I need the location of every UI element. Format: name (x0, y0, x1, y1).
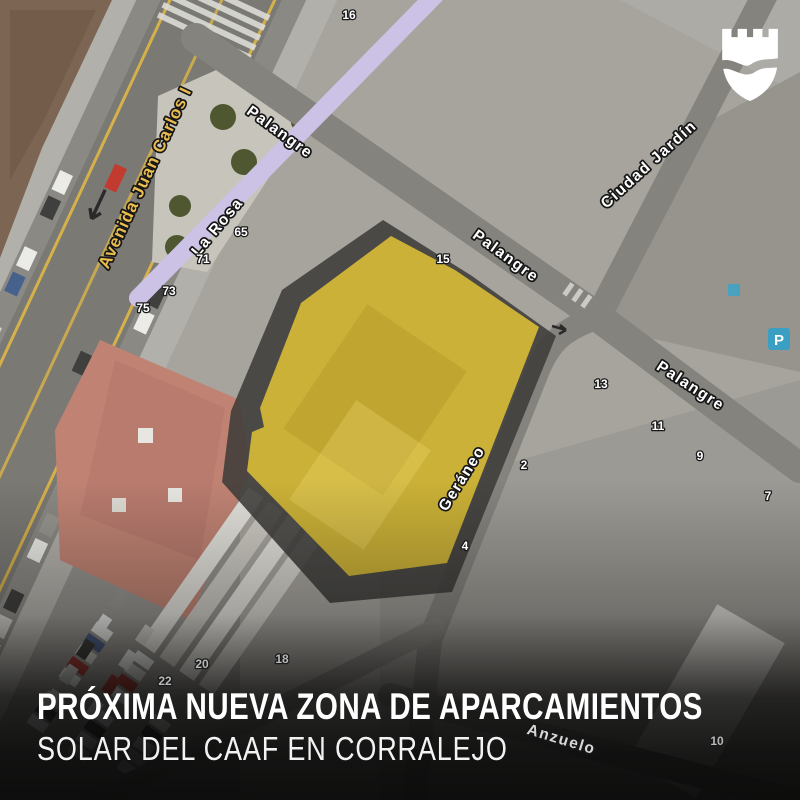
house-number: 9 (697, 449, 704, 463)
house-number: 11 (652, 419, 665, 433)
house-number: 16 (342, 8, 356, 22)
house-number: 2 (521, 458, 528, 472)
house-number: 71 (196, 252, 210, 266)
house-number: 20 (195, 657, 209, 671)
house-number: 75 (136, 301, 150, 315)
house-number: 18 (275, 652, 289, 666)
house-number: 13 (594, 377, 608, 391)
municipality-shield-logo (716, 24, 782, 112)
house-number: 15 (436, 252, 450, 266)
house-number: 7 (765, 489, 772, 503)
caption-subtitle: SOLAR DEL CAAF EN CORRALEJO (37, 731, 800, 767)
house-number: 4 (462, 539, 469, 553)
parking-badge-label: P (774, 332, 784, 349)
caption-title-text: PRÓXIMA NUEVA ZONA DE APARCAMIENTOS (37, 688, 703, 727)
post-image: P Avenida Juan Carlos I Palangre Palangr… (0, 0, 800, 800)
caption: PRÓXIMA NUEVA ZONA DE APARCAMIENTOS SOLA… (37, 688, 800, 767)
satellite-map: P Avenida Juan Carlos I Palangre Palangr… (0, 0, 800, 800)
caption-subtitle-text: SOLAR DEL CAAF EN CORRALEJO (37, 731, 508, 767)
house-number: 73 (162, 284, 176, 298)
house-number: 65 (234, 225, 248, 239)
caption-title: PRÓXIMA NUEVA ZONA DE APARCAMIENTOS (37, 688, 800, 727)
parking-badge-small (728, 284, 740, 296)
parking-badge: P (768, 328, 790, 350)
shield-icon (722, 29, 778, 101)
